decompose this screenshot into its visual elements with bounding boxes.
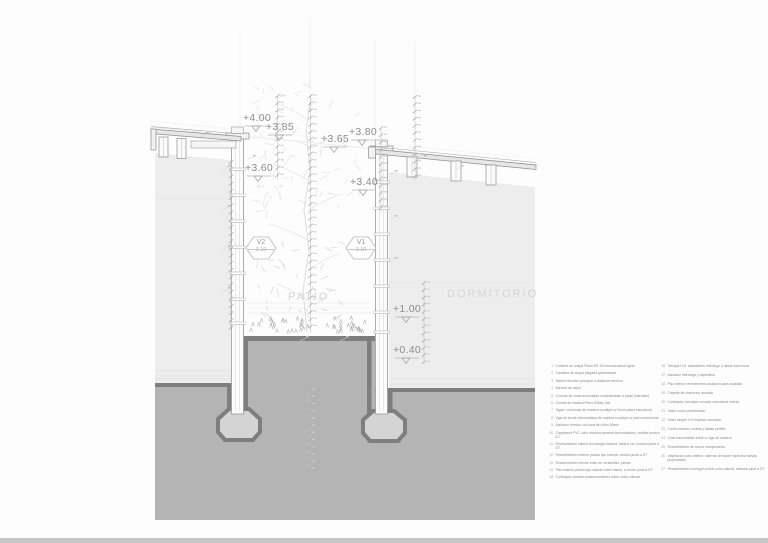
legend-item-text: Piso exterior piedra laja natural sobre … xyxy=(556,468,653,472)
legend-item-number: 27 xyxy=(657,467,665,471)
legend-item: 23Canto metalico umbral y tablas perfile… xyxy=(657,427,768,431)
legend-item-text: Vegetacion para interior, sistema drenan… xyxy=(668,454,768,462)
legend-item-number: 6 xyxy=(545,401,553,405)
window-tag-id: V1 xyxy=(346,239,376,247)
legend-item-number: 13 xyxy=(545,461,553,465)
legend-item: 25Revestimiento de muros mamposteria xyxy=(657,445,768,449)
window-tag-v2: V2 3.10 xyxy=(246,239,276,253)
legend-item-text: Carpeta de nivelacion armada xyxy=(668,391,713,395)
legend-item: 8Viga de borde intermediaria de madera e… xyxy=(545,416,661,420)
legend-column-left: 1Cubierta de chapa Panel KR-18 termoacus… xyxy=(545,364,661,479)
legend-item-text: Cubierta de chapa Panel KR-18 termoacust… xyxy=(556,364,635,368)
level-label-385: +3.85 xyxy=(266,121,294,133)
legend-item-number: 11 xyxy=(545,442,553,446)
legend-item-text: Vidrio crudo prefabricado xyxy=(668,409,706,413)
legend-item: 3Tablero fenolico principal c/ aislacion… xyxy=(545,379,661,383)
legend-item: 7Vigas / columnas de madera eucalipto s/… xyxy=(545,408,661,412)
level-label-380: +3.80 xyxy=(349,126,377,138)
legend-item-number: 1 xyxy=(545,364,553,368)
sheet-bottom-edge xyxy=(0,538,768,543)
legend-item: 9Aislacion termica con lana de vidrio 50… xyxy=(545,423,661,427)
legend-item-number: 5 xyxy=(545,394,553,398)
legend-item-text: Contrapiso armado estacionamiento sobre … xyxy=(556,475,640,479)
legend-item-number: 24 xyxy=(657,436,665,440)
legend-item: 12Revestimiento exterior placas tipo nat… xyxy=(545,453,661,457)
legend-item-number: 25 xyxy=(657,445,665,449)
legend-item-number: 10 xyxy=(545,431,553,435)
legend-item-text: Viga de borde intermediaria de madera eu… xyxy=(556,416,659,420)
footing-right xyxy=(363,411,405,441)
legend-item-number: 3 xyxy=(545,379,553,383)
legend-item: 13Recubrimiento interior tratto de venta… xyxy=(545,461,661,465)
window-tag-id: V2 xyxy=(246,239,276,247)
legend-item-number: 18 xyxy=(657,382,665,386)
legend-item: 2Canaleta de chapa plegada galvanizada xyxy=(545,371,661,375)
legend-item-text: Cenefa de madera Pinus Elliotis 2x6 xyxy=(556,401,611,405)
legend-item: 24Cinta transmisible doble c/ viga de ma… xyxy=(657,436,768,440)
level-label-340: +3.40 xyxy=(350,176,378,188)
legend-item-number: 14 xyxy=(545,468,553,472)
legend-item-number: 21 xyxy=(657,409,665,413)
legend-item-text: Recubrimiento hormigon pulido color natu… xyxy=(668,467,765,471)
legend-item: 14Piso exterior piedra laja natural sobr… xyxy=(545,468,661,472)
legend-item-text: Revestimiento exterior placas tipo natur… xyxy=(556,453,648,457)
legend-item-text: Revestimiento de muros mamposteria xyxy=(668,445,725,449)
legend-item-text: Revestimiento interior tecnologia madera… xyxy=(556,442,662,450)
legend-item-number: 20 xyxy=(657,400,665,404)
legend-item-text: Aislacion termica con lana de vidrio 50m… xyxy=(556,423,620,427)
legend-item-number: 2 xyxy=(545,371,553,375)
legend-item: 17Aislacion hidrofuga y especifica xyxy=(657,373,768,377)
legend-item-text: Tablero fenolico principal c/ aislacion … xyxy=(556,379,623,383)
legend-item-number: 22 xyxy=(657,418,665,422)
legend-item: 19Carpeta de nivelacion armada xyxy=(657,391,768,395)
legend-item-text: Aislacion hidrofuga y especifica xyxy=(668,373,715,377)
legend-item: 1Cubierta de chapa Panel KR-18 termoacus… xyxy=(545,364,661,368)
legend-item-number: 12 xyxy=(545,453,553,457)
legend-item: 5Correas de madera eucalipto suministrad… xyxy=(545,394,661,398)
legend-item-text: Canaleta de chapa plegada galvanizada xyxy=(556,371,617,375)
legend-item-number: 15 xyxy=(545,475,553,479)
legend-item-number: 4 xyxy=(545,386,553,390)
legend-item-text: Vigas / columnas de madera eucalipto s/ … xyxy=(556,408,652,412)
legend-item: 11Revestimiento interior tecnologia made… xyxy=(545,442,661,450)
level-label-040: +0.40 xyxy=(393,344,421,356)
level-label-360: +3.60 xyxy=(245,162,273,174)
legend-item-text: Barrera de vapor xyxy=(556,386,581,390)
window-tag-value: 3.10 xyxy=(346,247,376,253)
legend-item: 21Vidrio crudo prefabricado xyxy=(657,409,768,413)
legend-item: 15Contrapiso armado estacionamiento sobr… xyxy=(545,475,661,479)
legend-item: 22Vidrio simple 4+4 espesor laminado xyxy=(657,418,768,422)
legend-item-text: Vidrio simple 4+4 espesor laminado xyxy=(668,418,722,422)
legend-item-text: Contrapiso hormigon armado estructural i… xyxy=(668,400,740,404)
legend-item: 18Piso interior revestimiento aislacion … xyxy=(657,382,768,386)
legend-item: 16Tabique H.A. aislamiento hidrofugo y t… xyxy=(657,364,768,368)
window-tag-v1: V1 3.10 xyxy=(346,239,376,253)
room-label-dormitorio: DORMITORIO xyxy=(447,288,538,300)
legend-item-text: Correas de madera eucalipto suministrada… xyxy=(556,394,650,398)
planting-marks xyxy=(250,316,367,334)
legend-item-number: 19 xyxy=(657,391,665,395)
window-tag-value: 3.10 xyxy=(246,247,276,253)
legend-item-text: Recubrimiento interior tratto de ventani… xyxy=(556,461,631,465)
legend-item: 10Carpinteria PVC color madera paneles d… xyxy=(545,431,661,439)
legend-item-text: Canto metalico umbral y tablas perfiles xyxy=(668,427,726,431)
legend-item-text: Piso interior revestimiento aislacion pa… xyxy=(668,382,743,386)
legend-item: 4Barrera de vapor xyxy=(545,386,661,390)
legend-item-text: Tabique H.A. aislamiento hidrofugo y tab… xyxy=(668,364,749,368)
legend-item: 26Vegetacion para interior, sistema dren… xyxy=(657,454,768,462)
legend-item-text: Carpinteria PVC color madera paneles des… xyxy=(556,431,662,439)
legend-item-number: 23 xyxy=(657,427,665,431)
level-label-365: +3.65 xyxy=(321,133,349,145)
legend-item-number: 9 xyxy=(545,423,553,427)
legend-item-number: 7 xyxy=(545,408,553,412)
legend-item-number: 17 xyxy=(657,373,665,377)
level-label-100: +1.00 xyxy=(393,303,421,315)
legend-item: 27Recubrimiento hormigon pulido color na… xyxy=(657,467,768,471)
legend-item-text: Cinta transmisible doble c/ viga de made… xyxy=(668,436,732,440)
legend-item: 20Contrapiso hormigon armado estructural… xyxy=(657,400,768,404)
room-label-patio: PATIO xyxy=(288,291,329,303)
legend-item-number: 16 xyxy=(657,364,665,368)
legend-item: 6Cenefa de madera Pinus Elliotis 2x6 xyxy=(545,401,661,405)
legend-item-number: 26 xyxy=(657,454,665,458)
section-drawing-sheet: +4.00 +3.85 +3.80 +3.65 +3.60 +3.40 +1.0… xyxy=(0,0,768,543)
legend-item-number: 8 xyxy=(545,416,553,420)
legend-column-right: 16Tabique H.A. aislamiento hidrofugo y t… xyxy=(657,364,768,471)
